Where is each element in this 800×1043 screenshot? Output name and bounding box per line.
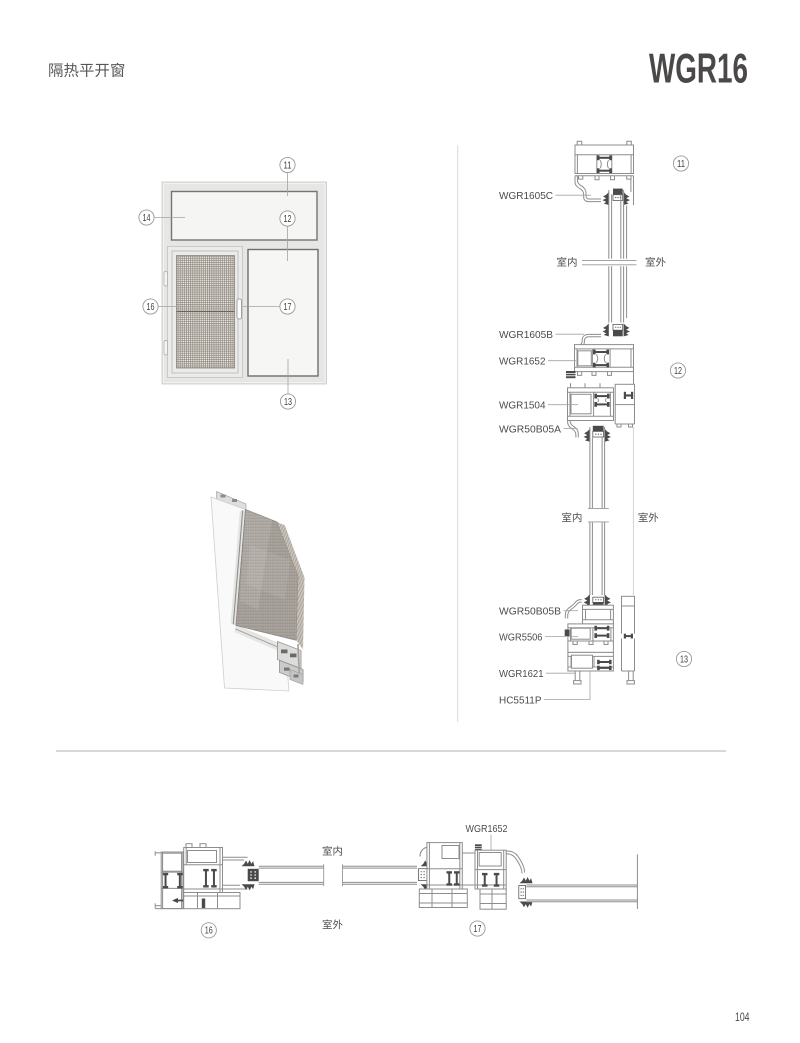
svg-text:13: 13 bbox=[284, 397, 292, 408]
svg-text:WGR50B05A: WGR50B05A bbox=[499, 423, 561, 435]
svg-text:17: 17 bbox=[474, 924, 482, 935]
svg-text:16: 16 bbox=[147, 302, 155, 313]
svg-text:WGR16: WGR16 bbox=[649, 45, 748, 92]
svg-text:16: 16 bbox=[205, 926, 213, 937]
svg-text:14: 14 bbox=[143, 213, 151, 224]
svg-text:11: 11 bbox=[677, 159, 685, 170]
svg-text:WGR1605C: WGR1605C bbox=[499, 190, 553, 202]
svg-text:WGR1652: WGR1652 bbox=[499, 356, 546, 368]
svg-text:WGR1605B: WGR1605B bbox=[499, 329, 553, 341]
svg-text:HC5511P: HC5511P bbox=[499, 694, 542, 706]
svg-text:WGR1652: WGR1652 bbox=[466, 823, 508, 835]
svg-text:12: 12 bbox=[284, 214, 292, 225]
svg-text:WGR5506: WGR5506 bbox=[499, 631, 543, 643]
svg-text:104: 104 bbox=[735, 1010, 750, 1024]
svg-text:13: 13 bbox=[680, 654, 688, 665]
svg-text:WGR1621: WGR1621 bbox=[499, 668, 544, 680]
svg-text:11: 11 bbox=[284, 160, 292, 171]
svg-text:WGR50B05B: WGR50B05B bbox=[499, 606, 561, 618]
svg-text:12: 12 bbox=[674, 366, 682, 377]
svg-text:17: 17 bbox=[284, 302, 292, 313]
svg-text:WGR1504: WGR1504 bbox=[499, 400, 546, 412]
